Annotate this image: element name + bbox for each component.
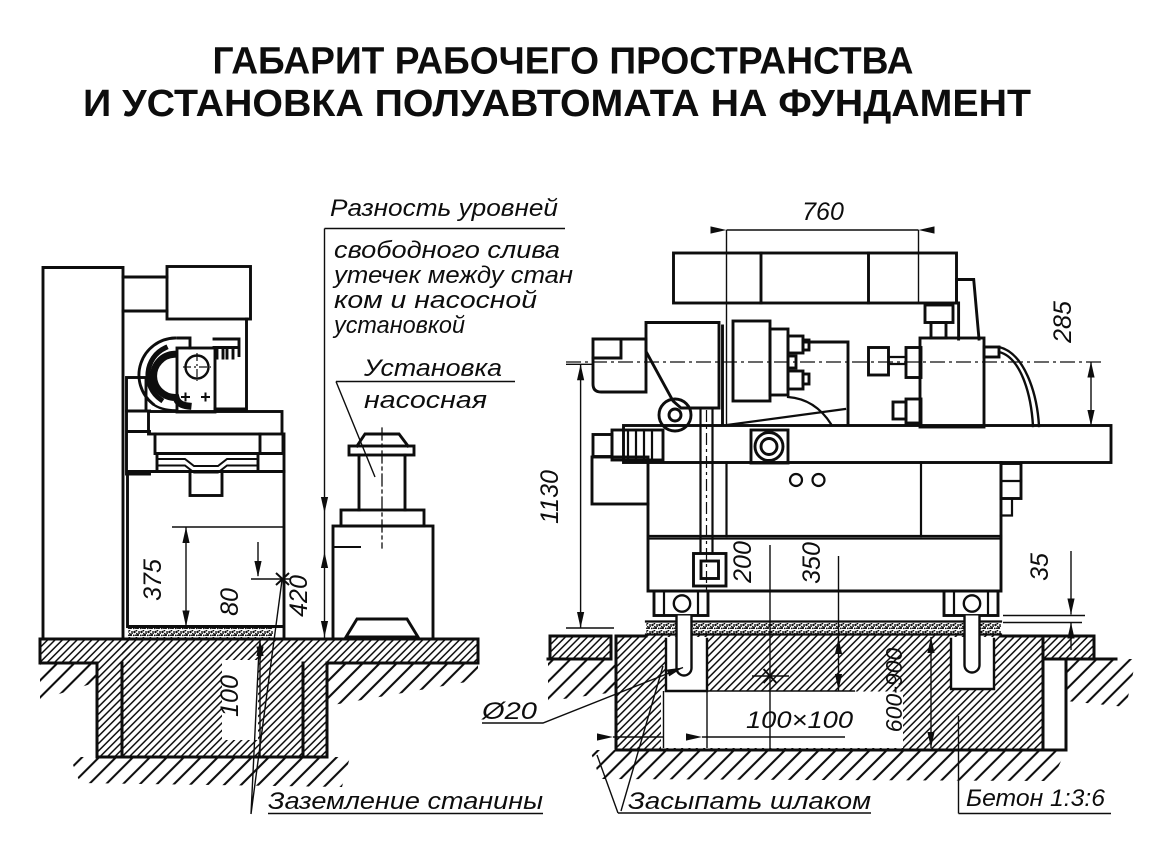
svg-text:350: 350 — [798, 542, 826, 584]
svg-text:80: 80 — [216, 588, 244, 616]
svg-text:35: 35 — [1026, 553, 1054, 581]
svg-text:Заземление станины: Заземление станины — [268, 788, 543, 815]
svg-text:375: 375 — [139, 559, 167, 601]
svg-text:200: 200 — [729, 541, 757, 584]
svg-text:установкой: установкой — [332, 312, 465, 339]
svg-text:утечек между стан: утечек между стан — [332, 262, 573, 289]
svg-text:свободного слива: свободного слива — [334, 237, 560, 264]
svg-text:Разность уровней: Разность уровней — [330, 195, 558, 222]
svg-text:760: 760 — [802, 198, 844, 226]
svg-text:Ø20: Ø20 — [481, 698, 538, 725]
svg-text:600-900: 600-900 — [881, 648, 907, 733]
svg-text:И УСТАНОВКА ПОЛУАВТОМАТА НА: И УСТАНОВКА ПОЛУАВТОМАТА НА ФУНДАМЕНТ — [83, 83, 1031, 125]
svg-text:100: 100 — [216, 675, 244, 717]
svg-text:ком и насосной: ком и насосной — [334, 287, 537, 314]
svg-text:100×100: 100×100 — [746, 707, 854, 734]
svg-text:420: 420 — [285, 575, 313, 617]
svg-text:Засыпать шлаком: Засыпать шлаком — [628, 788, 871, 815]
svg-text:Установка: Установка — [363, 355, 502, 382]
svg-text:ГАБАРИТ РАБОЧЕГО ПРОСТРАНСТВ: ГАБАРИТ РАБОЧЕГО ПРОСТРАНСТВА — [213, 41, 914, 83]
svg-text:Бетон 1:3:6: Бетон 1:3:6 — [966, 785, 1106, 812]
svg-text:насосная: насосная — [364, 387, 487, 414]
svg-text:1130: 1130 — [536, 470, 564, 524]
svg-text:285: 285 — [1049, 301, 1077, 344]
